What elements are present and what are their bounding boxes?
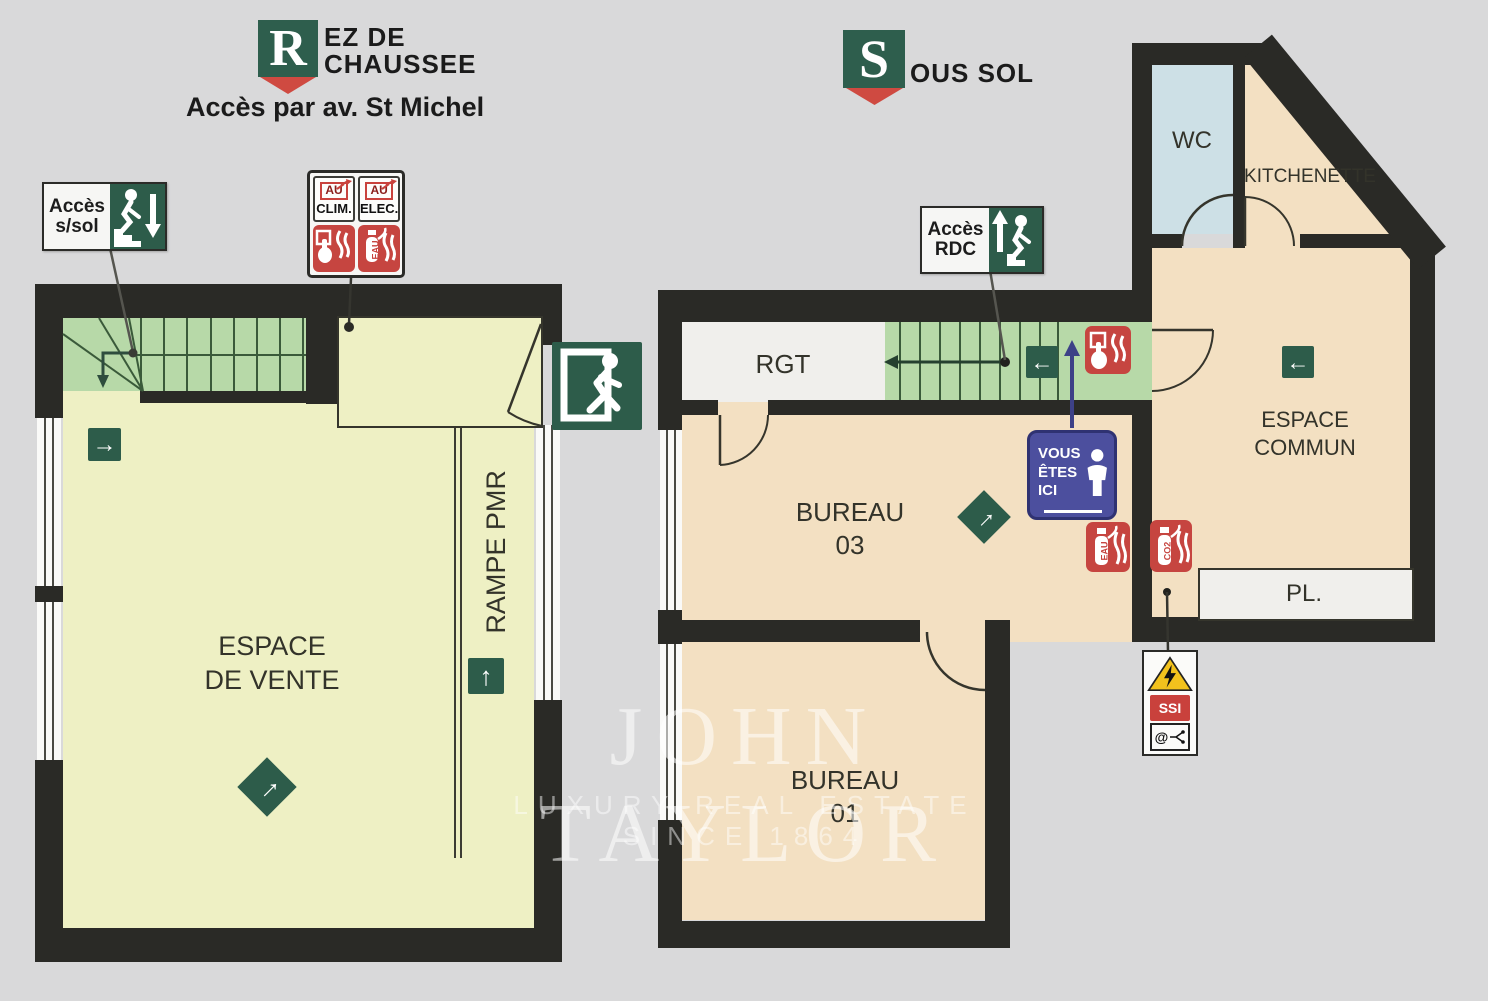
elec-cutoff-panel: AU ELEC. [358,176,400,222]
ground-floor-access-note: Accès par av. St Michel [186,92,484,123]
access-ground-sign-line1: Accès [928,220,984,240]
alarm-hand-icon [313,225,355,267]
fire-alarm-sign [1085,326,1131,374]
wc-label: WC [1162,126,1222,156]
you-are-here-line3: ICI [1038,482,1081,501]
access-ground-sign-line2: RDC [935,240,976,260]
office3-label-line2: 03 [790,529,910,562]
ramp-label: RAMPE PMR [480,442,514,662]
fire-alarm-panel [313,225,355,272]
storage-room-label: RGT [733,348,833,381]
wc-wall-bottom [1152,234,1182,248]
office1-wall-right [985,620,1010,948]
running-man-icon [552,342,642,430]
access-basement-sign-line1: Accès [49,197,105,217]
stairs-up-icon [989,208,1042,272]
cutoff-arrow-icon [381,179,397,191]
ground-window-left-2 [37,602,61,760]
arrow-right-icon: → [93,431,117,459]
ground-stairs-floor [63,318,306,391]
office-divider-wall [658,620,920,642]
clim-cutoff-panel: AU CLIM. [313,176,355,222]
basement-wall-left-upper [658,290,682,430]
closet-label: PL. [1198,579,1410,609]
sales-area-label-line2: DE VENTE [162,664,382,698]
common-wall-top [1132,43,1272,65]
network-box: @ [1150,723,1190,751]
direction-right-sign: → [88,428,121,461]
utilities-cutoff-sign: AU CLIM. AU ELEC. [307,170,405,278]
direction-up-sign: ↑ [468,658,504,694]
extinguisher-eau-label: EAU [371,240,381,259]
sign-underline [1044,510,1102,513]
basement-logo-badge: S [843,30,905,88]
basement-window-2 [660,644,682,820]
ssi-badge: SSI [1150,695,1190,721]
ground-wall-left-pier [35,586,63,602]
access-basement-sign-line2: s/sol [55,217,98,237]
you-are-here-line1: VOUS [1038,445,1081,464]
alarm-hand-icon [1085,326,1131,374]
office1-label: BUREAU 01 [785,764,905,829]
emergency-exit-sign [552,342,642,430]
office3-label-line1: BUREAU [790,496,910,529]
office1-label-line1: BUREAU [785,764,905,797]
ground-window-right [536,425,560,700]
common-area-label-line1: ESPACE [1235,406,1375,434]
ground-wall-bottom [35,928,562,962]
office1-wall-bottom [658,921,1010,948]
clim-label: CLIM. [316,201,351,216]
at-symbol: @ [1155,729,1169,745]
common-area-label-line2: COMMUN [1235,434,1375,462]
storage-wall-b [768,400,1152,415]
electrical-hazard-icon [1147,655,1193,693]
basement-title: OUS SOL [910,58,1034,89]
ground-stairs-side-wall [306,318,340,404]
extinguisher-eau-sign: EAU [1086,522,1130,572]
sales-area-label-line1: ESPACE [162,630,382,664]
arrow-ne-icon: → [246,766,288,808]
ssi-technical-sign: SSI @ [1142,650,1198,756]
kitchenette-label: KITCHENETTE [1244,165,1376,189]
extinguisher-co2-sign: CO2 [1150,520,1192,572]
ground-wall-top [35,284,562,318]
landing-passage-floor [1132,322,1152,400]
sales-area-label: ESPACE DE VENTE [162,630,382,698]
common-area-corner [1152,570,1198,617]
ground-stairs-edge-wall [140,391,310,403]
arrow-up-icon: ↑ [480,661,493,692]
storage-wall-a [682,400,718,415]
ground-window-left-1 [37,418,61,586]
wc-kitchenette-wall [1233,62,1245,248]
entry-vestibule [337,316,543,428]
arrow-ne-icon: → [965,498,1003,536]
access-ground-sign: Accès RDC [920,206,1044,274]
stairs-direction-left-sign: ← [1026,346,1058,378]
ground-floor-title-line2: CHAUSSEE [324,49,476,80]
common-wall-left-upper [1132,43,1152,322]
you-are-here-sign: VOUS ÊTES ICI [1027,430,1117,520]
stairs-down-icon [110,184,165,249]
ground-wall-right-lower [534,700,562,930]
ground-floor-logo-badge: R [258,20,318,77]
office3-label: BUREAU 03 [790,496,910,561]
elec-label: ELEC. [360,201,398,216]
basement-logo-chevron [846,88,903,105]
arrow-left-icon: ← [1287,349,1310,376]
common-wall-left-lower [1132,400,1152,617]
extinguisher-eau-label: EAU [1100,541,1110,560]
ground-wall-left-upper [35,318,63,418]
person-icon [1084,445,1110,501]
network-fork-icon [1169,729,1185,745]
you-are-here-line2: ÊTES [1038,464,1081,483]
cutoff-arrow-icon [336,179,352,191]
office1-label-line2: 01 [785,797,905,830]
kitchenette-wall-bottom [1300,234,1412,248]
floor-plan-page: R EZ DE CHAUSSEE Accès par av. St Michel… [0,0,1488,1001]
access-basement-sign: Accès s/sol [42,182,167,251]
common-area-direction-left-sign: ← [1282,346,1314,378]
basement-wall-top [658,290,1132,322]
arrow-left-icon: ← [1031,349,1054,376]
extinguisher-eau-panel: EAU [358,225,400,272]
basement-window-1 [660,430,682,610]
extinguisher-co2-label: CO2 [1162,542,1172,561]
common-area-label: ESPACE COMMUN [1235,406,1375,461]
